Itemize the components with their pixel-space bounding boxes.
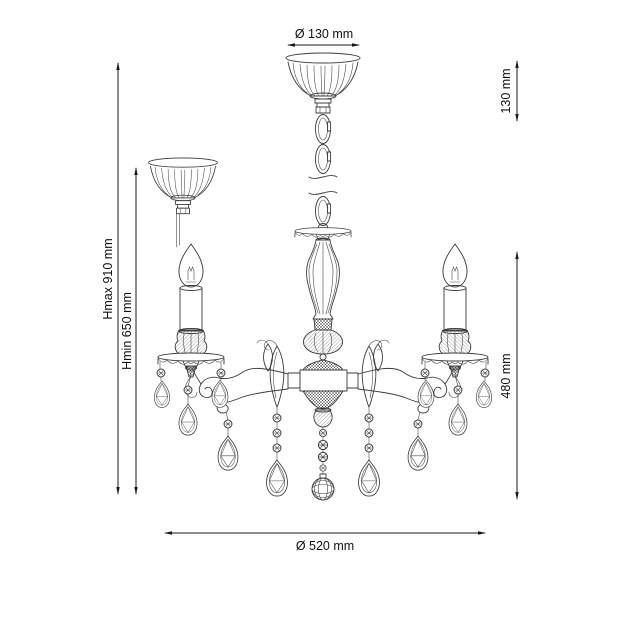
dimension-body-diameter: Ø 520 mm <box>164 531 486 553</box>
dimension-height-max: Hmax 910 mm <box>101 62 120 495</box>
center-column <box>288 228 358 427</box>
height-max-label: Hmax 910 mm <box>101 238 115 319</box>
body-height-label: 480 mm <box>499 353 513 398</box>
left-arm-assembly <box>154 244 288 496</box>
canopy-cable <box>177 214 180 247</box>
diagram-canvas: Ø 130 mm 130 mm Hmax 910 mm Hmin 650 mm … <box>0 0 630 630</box>
main-canopy <box>286 53 360 113</box>
dimension-body-height: 480 mm <box>499 251 519 500</box>
dimension-height-min: Hmin 650 mm <box>120 167 138 495</box>
right-arm-assembly <box>358 244 492 496</box>
chandelier-dimension-diagram: Ø 130 mm 130 mm Hmax 910 mm Hmin 650 mm … <box>0 0 630 630</box>
hanging-chain <box>309 115 337 231</box>
chain-break-symbol <box>309 176 337 195</box>
hub-box <box>300 370 347 391</box>
dimension-mount-height: 130 mm <box>499 60 519 122</box>
mount-height-label: 130 mm <box>499 68 513 113</box>
center-pendant <box>312 427 334 500</box>
body-diameter-label: Ø 520 mm <box>296 539 354 553</box>
small-canopy <box>149 158 218 247</box>
dimension-canopy-diameter: Ø 130 mm <box>287 27 360 47</box>
height-min-label: Hmin 650 mm <box>120 292 134 370</box>
canopy-diameter-label: Ø 130 mm <box>295 27 353 41</box>
